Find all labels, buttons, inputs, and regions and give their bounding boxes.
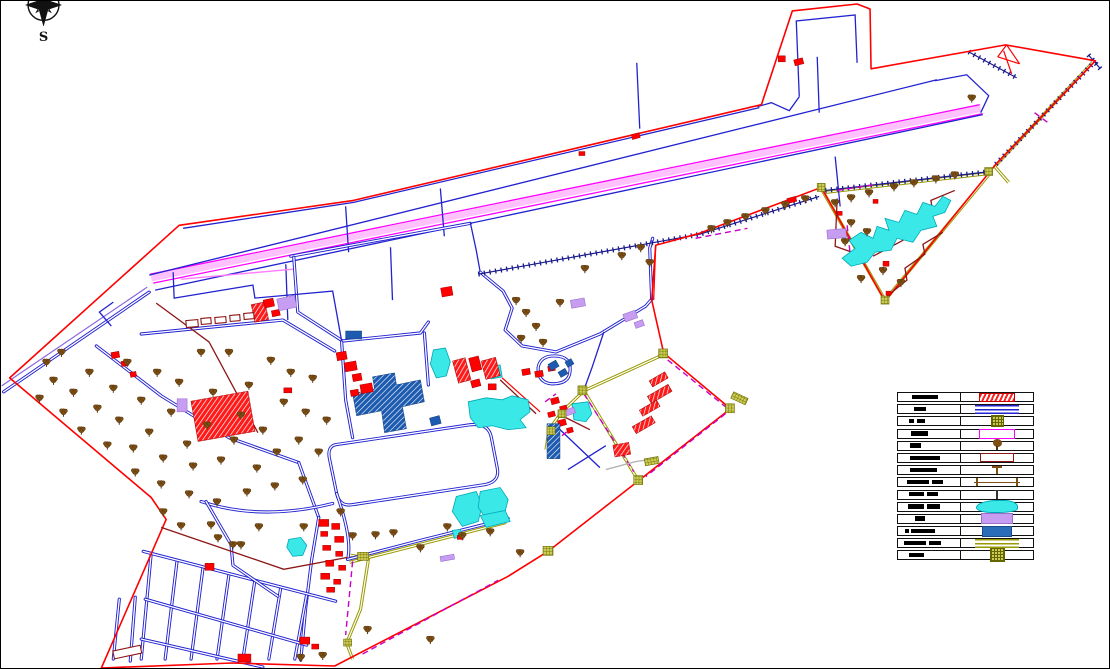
legend-label-text (932, 480, 943, 484)
paved-pad (725, 404, 734, 413)
tree-icon (237, 541, 245, 549)
building-red (238, 654, 251, 662)
building-red (453, 358, 471, 384)
boundary-layer (10, 4, 1096, 668)
dirt-road (825, 173, 989, 192)
paved-pad (547, 427, 555, 435)
legend-symbol-cell (961, 551, 1033, 559)
tree-icon (177, 522, 185, 530)
tree-icon (129, 445, 137, 453)
building-outline (215, 317, 226, 324)
legend-label-text (927, 492, 938, 496)
paved-pad (344, 639, 352, 646)
legend-row (897, 441, 1034, 451)
road-line (390, 247, 392, 300)
legend-symbol-cell (961, 405, 1033, 413)
tree-icon (287, 369, 295, 377)
building-red (547, 411, 555, 418)
building-red (321, 531, 328, 536)
building-red (319, 519, 329, 526)
dirt-road (995, 63, 1093, 183)
tree-icon (516, 549, 524, 557)
tree-icon (302, 409, 310, 417)
water-body-icon (976, 500, 1018, 513)
building-red (111, 351, 120, 358)
building-red (339, 565, 346, 570)
tree-icon (259, 427, 267, 435)
tree-icon (315, 449, 323, 457)
road-line (294, 257, 429, 341)
building-red (350, 389, 359, 396)
olive-grid-square-icon (991, 415, 1004, 427)
building-red (647, 384, 672, 403)
magenta-outline-rect-icon (979, 429, 1015, 439)
tree-icon (243, 489, 251, 497)
building-red (335, 536, 344, 542)
maroon-outline-rect-icon (980, 453, 1014, 462)
hatched-red-rect-icon (979, 393, 1015, 402)
building-lavender (827, 229, 847, 240)
building-red (332, 523, 340, 529)
tree-icon (364, 626, 372, 634)
paved-pad (817, 183, 825, 191)
building-red (631, 133, 640, 140)
building-lavender (623, 310, 638, 322)
legend-row (897, 550, 1034, 560)
legend-label-text (909, 419, 914, 423)
legend-label (898, 454, 961, 462)
tree-icon (189, 463, 197, 471)
legend-row (897, 465, 1034, 475)
road-line (480, 272, 651, 352)
building-outline (230, 315, 240, 322)
road-line (243, 580, 255, 659)
building-blue (430, 416, 442, 426)
tree-icon (416, 544, 424, 552)
legend-label-text (908, 504, 924, 508)
road-line (2, 287, 148, 386)
building-blue (558, 368, 568, 377)
tree-icon (443, 523, 451, 531)
legend-label-text (910, 456, 940, 460)
tree-icon (207, 521, 215, 529)
road-line (348, 518, 509, 559)
building-red (873, 199, 878, 203)
blue-rect-icon (982, 526, 1012, 537)
tree-icon (522, 309, 530, 317)
legend-label (898, 393, 961, 401)
water-body (468, 396, 530, 430)
building-red (336, 351, 347, 361)
tree-icon (255, 523, 263, 531)
building-red (441, 286, 453, 297)
road-line (217, 574, 229, 659)
road-layer (2, 15, 989, 667)
tree-icon (991, 439, 1003, 452)
building-red (323, 545, 331, 550)
building-red (550, 397, 559, 405)
legend-row (897, 392, 1034, 402)
road-line (286, 264, 288, 320)
tree-icon (968, 95, 976, 103)
legend-label (898, 466, 961, 474)
road-line (935, 75, 989, 113)
tree-icon (841, 238, 849, 246)
legend-symbol-cell (961, 515, 1033, 523)
tree-icon (539, 339, 547, 347)
paved-pad (543, 546, 553, 555)
tree-icon (131, 469, 139, 477)
building-red (579, 152, 585, 156)
water-body (430, 348, 450, 378)
tree-icon (297, 654, 305, 662)
tree-icon (230, 437, 238, 445)
tree-icon (59, 409, 67, 417)
paved-pad (659, 349, 668, 358)
tree-icon (159, 508, 167, 516)
tree-icon (157, 481, 165, 489)
tree-icon (137, 397, 145, 405)
site-plan-canvas: S (1, 1, 1109, 668)
legend-label-text (911, 431, 928, 435)
water-body (452, 492, 482, 527)
compass-south-label: S (39, 30, 48, 45)
building-outline (244, 313, 254, 320)
building-red (837, 211, 842, 215)
paved-pad (881, 296, 889, 304)
legend-label-text (910, 468, 937, 472)
power-line-icon (974, 477, 1020, 487)
tree-icon (556, 299, 564, 307)
legend-row (897, 404, 1034, 414)
building-red (191, 391, 255, 441)
legend-label-text (914, 407, 926, 411)
tree-icon (69, 389, 77, 397)
paved-pad (644, 456, 659, 465)
tree-icon (295, 437, 303, 445)
building-red (326, 560, 334, 566)
building-red (469, 356, 482, 372)
paved-pad (358, 552, 369, 560)
dashed-boundary-line (346, 561, 353, 635)
water-body (842, 196, 951, 266)
legend-row (897, 538, 1034, 548)
tree-icon (253, 465, 261, 473)
building-red (312, 644, 319, 649)
legend-row (897, 490, 1034, 500)
building-red (321, 573, 330, 579)
building-red (639, 400, 660, 416)
building-lavender (440, 554, 455, 561)
tree-icon (581, 265, 589, 273)
legend-row (897, 502, 1034, 512)
building-red (327, 587, 335, 592)
building-red (566, 427, 573, 433)
legend-symbol-cell (961, 491, 1033, 499)
legend-symbol-cell (961, 478, 1033, 486)
tree-icon (271, 483, 279, 491)
compass-center (42, 3, 46, 7)
building-red (481, 357, 500, 379)
building-red (352, 373, 362, 381)
legend-row (897, 416, 1034, 426)
tree-icon (115, 417, 123, 425)
building-red (284, 388, 292, 393)
legend-label-text (917, 419, 925, 423)
legend-label (898, 503, 961, 511)
tree-icon (372, 531, 380, 539)
tree-icon (167, 409, 175, 417)
legend-row (897, 514, 1034, 524)
tree-icon (245, 382, 253, 390)
legend-symbol-cell (961, 430, 1033, 438)
building-red (334, 579, 341, 584)
tree-icon (426, 636, 434, 644)
legend-label-text (909, 492, 924, 496)
building-red (632, 416, 655, 434)
legend-label (898, 527, 961, 535)
tree-icon (847, 219, 855, 227)
dirt-road (350, 522, 507, 562)
legend-symbol-cell (961, 417, 1033, 425)
legend-symbol-cell (961, 527, 1033, 535)
building-lavender (634, 320, 644, 329)
building-red (649, 372, 668, 387)
building-red (522, 368, 531, 375)
legend-label (898, 515, 961, 523)
legend-label-text (912, 395, 938, 399)
tree-icon (214, 534, 222, 542)
building-red (488, 384, 496, 390)
tree-icon (932, 175, 940, 183)
building-red (300, 637, 310, 644)
tree-icon (280, 399, 288, 407)
legend-label-text (927, 504, 940, 508)
legend-row (897, 477, 1034, 487)
tree-icon (646, 259, 654, 267)
legend-symbol-cell (961, 393, 1033, 401)
building-red (205, 563, 214, 570)
road-line (141, 553, 151, 659)
legend-label (898, 551, 961, 559)
tree-icon (319, 652, 327, 660)
road-line (796, 15, 857, 97)
road-line (269, 587, 281, 659)
legend-label (898, 478, 961, 486)
building-outline (201, 318, 211, 325)
building-red (778, 56, 785, 62)
tree-icon (183, 441, 191, 449)
tree-icon (637, 244, 645, 252)
paved-pad (985, 168, 993, 176)
road-line (480, 272, 651, 352)
tree-icon (50, 377, 58, 385)
legend-label (898, 417, 961, 425)
tree-icon (225, 349, 233, 357)
boundary-segment (998, 57, 1020, 64)
tree-icon (217, 457, 225, 465)
tree-icon (389, 529, 397, 537)
tree-icon (185, 491, 193, 499)
building-outline (113, 645, 142, 659)
building-lavender (570, 298, 585, 308)
road-line (637, 63, 640, 129)
legend-symbol-cell (961, 442, 1033, 450)
tree-icon (486, 528, 494, 536)
road-line (4, 292, 150, 392)
legend-row (897, 453, 1034, 463)
fence-line (825, 171, 991, 190)
building-red (344, 361, 357, 372)
legend-row (897, 429, 1034, 439)
tree-icon (879, 267, 887, 275)
building-red (886, 291, 891, 295)
building-lavender (277, 295, 297, 310)
drawing-page: S (0, 0, 1110, 669)
tree-icon (323, 417, 331, 425)
legend-row (897, 526, 1034, 536)
compass-rose: S (26, 1, 62, 45)
legend-label (898, 442, 961, 450)
legend-symbol-cell (961, 503, 1033, 511)
legend-label-text (911, 529, 935, 533)
tree-icon (300, 523, 308, 531)
legend-label-text (910, 443, 921, 447)
legend-symbol-cell (961, 539, 1033, 547)
tree-icon (103, 442, 111, 450)
building-red (130, 371, 137, 377)
building-red (883, 261, 889, 266)
road-line (470, 222, 480, 272)
lamp-icon (992, 490, 1002, 500)
tree-icon (267, 357, 275, 365)
olive-parallel-lines-icon (975, 539, 1019, 548)
paved-pad (558, 410, 566, 418)
olive-grid-square-lg-icon (990, 548, 1005, 562)
legend-symbol-cell (961, 454, 1033, 462)
legend (897, 392, 1034, 560)
dashed-boundary-line (668, 360, 726, 407)
legend-label (898, 491, 961, 499)
dashed-boundary-line (646, 414, 726, 477)
legend-label-text (915, 516, 925, 520)
legend-label-text (904, 541, 926, 545)
tree-icon (847, 194, 855, 202)
building-blue (346, 331, 362, 339)
building-red (336, 551, 343, 556)
tree-icon (865, 189, 873, 197)
paved-pad (634, 476, 643, 485)
building-red (471, 379, 481, 388)
building-red (360, 383, 373, 394)
tree-icon (910, 179, 918, 187)
lavender-rect-icon (981, 513, 1013, 524)
tree-icon (175, 379, 183, 387)
tree-icon (857, 275, 865, 283)
tree-icon (532, 323, 540, 331)
fence-layer (478, 52, 1100, 274)
tree-icon (618, 252, 626, 260)
paved-pad (578, 386, 587, 395)
tree-icon (309, 375, 317, 383)
building-red (794, 58, 804, 66)
fence-line (969, 52, 1017, 78)
building-lavender (177, 399, 187, 412)
legend-label-text (905, 529, 909, 533)
building-red (535, 370, 544, 377)
legend-label-text (929, 541, 941, 545)
tree-icon (93, 405, 101, 413)
tree-icon (77, 427, 85, 435)
terminal-building (353, 373, 425, 433)
blue-parallel-lines-icon (975, 405, 1019, 414)
tree-icon (512, 297, 520, 305)
road-line (817, 57, 819, 113)
legend-label-text (907, 480, 929, 484)
building-red (263, 298, 274, 308)
legend-label-text (909, 553, 924, 557)
legend-symbol-cell (961, 466, 1033, 474)
tree-icon (890, 183, 898, 191)
road-line (294, 257, 429, 341)
site-boundary-line (10, 4, 1096, 668)
building-outline (186, 320, 199, 328)
dirt-road (995, 63, 1093, 183)
tree-icon (145, 429, 153, 437)
legend-label (898, 539, 961, 547)
building-red (613, 442, 631, 457)
dashed-line-layer (346, 113, 1051, 654)
tree-icon (85, 369, 93, 377)
water-body (287, 537, 307, 556)
tree-icon (153, 369, 161, 377)
legend-label (898, 430, 961, 438)
tree-icon (197, 349, 205, 357)
pole-icon (991, 465, 1003, 475)
paved-pad (731, 392, 748, 405)
tree-icon (209, 389, 217, 397)
road-line (568, 446, 606, 470)
legend-label (898, 405, 961, 413)
tree-icon (109, 385, 117, 393)
tree-icon (159, 455, 167, 463)
